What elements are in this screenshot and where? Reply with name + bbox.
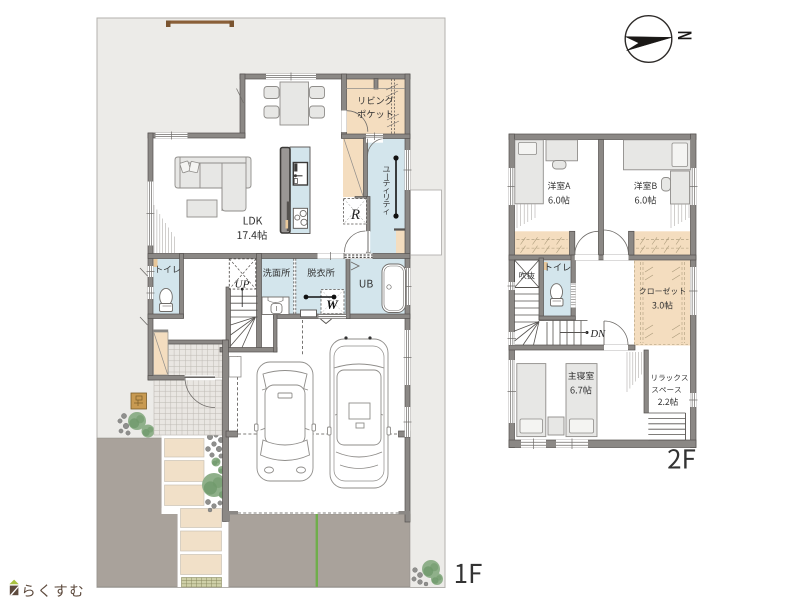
svg-text:W: W [326, 297, 339, 312]
svg-text:DN: DN [590, 329, 607, 340]
svg-text:R: R [350, 207, 360, 223]
svg-text:UP: UP [235, 279, 250, 291]
svg-text:N: N [673, 31, 695, 40]
